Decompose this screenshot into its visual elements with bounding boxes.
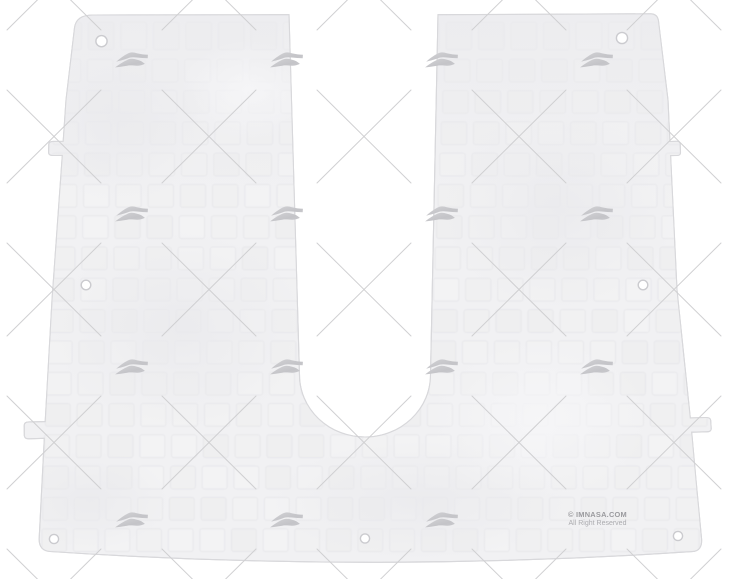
svg-text:© IMNASA.COM: © IMNASA.COM bbox=[568, 510, 627, 519]
svg-text:All Right Reserved: All Right Reserved bbox=[569, 520, 627, 527]
